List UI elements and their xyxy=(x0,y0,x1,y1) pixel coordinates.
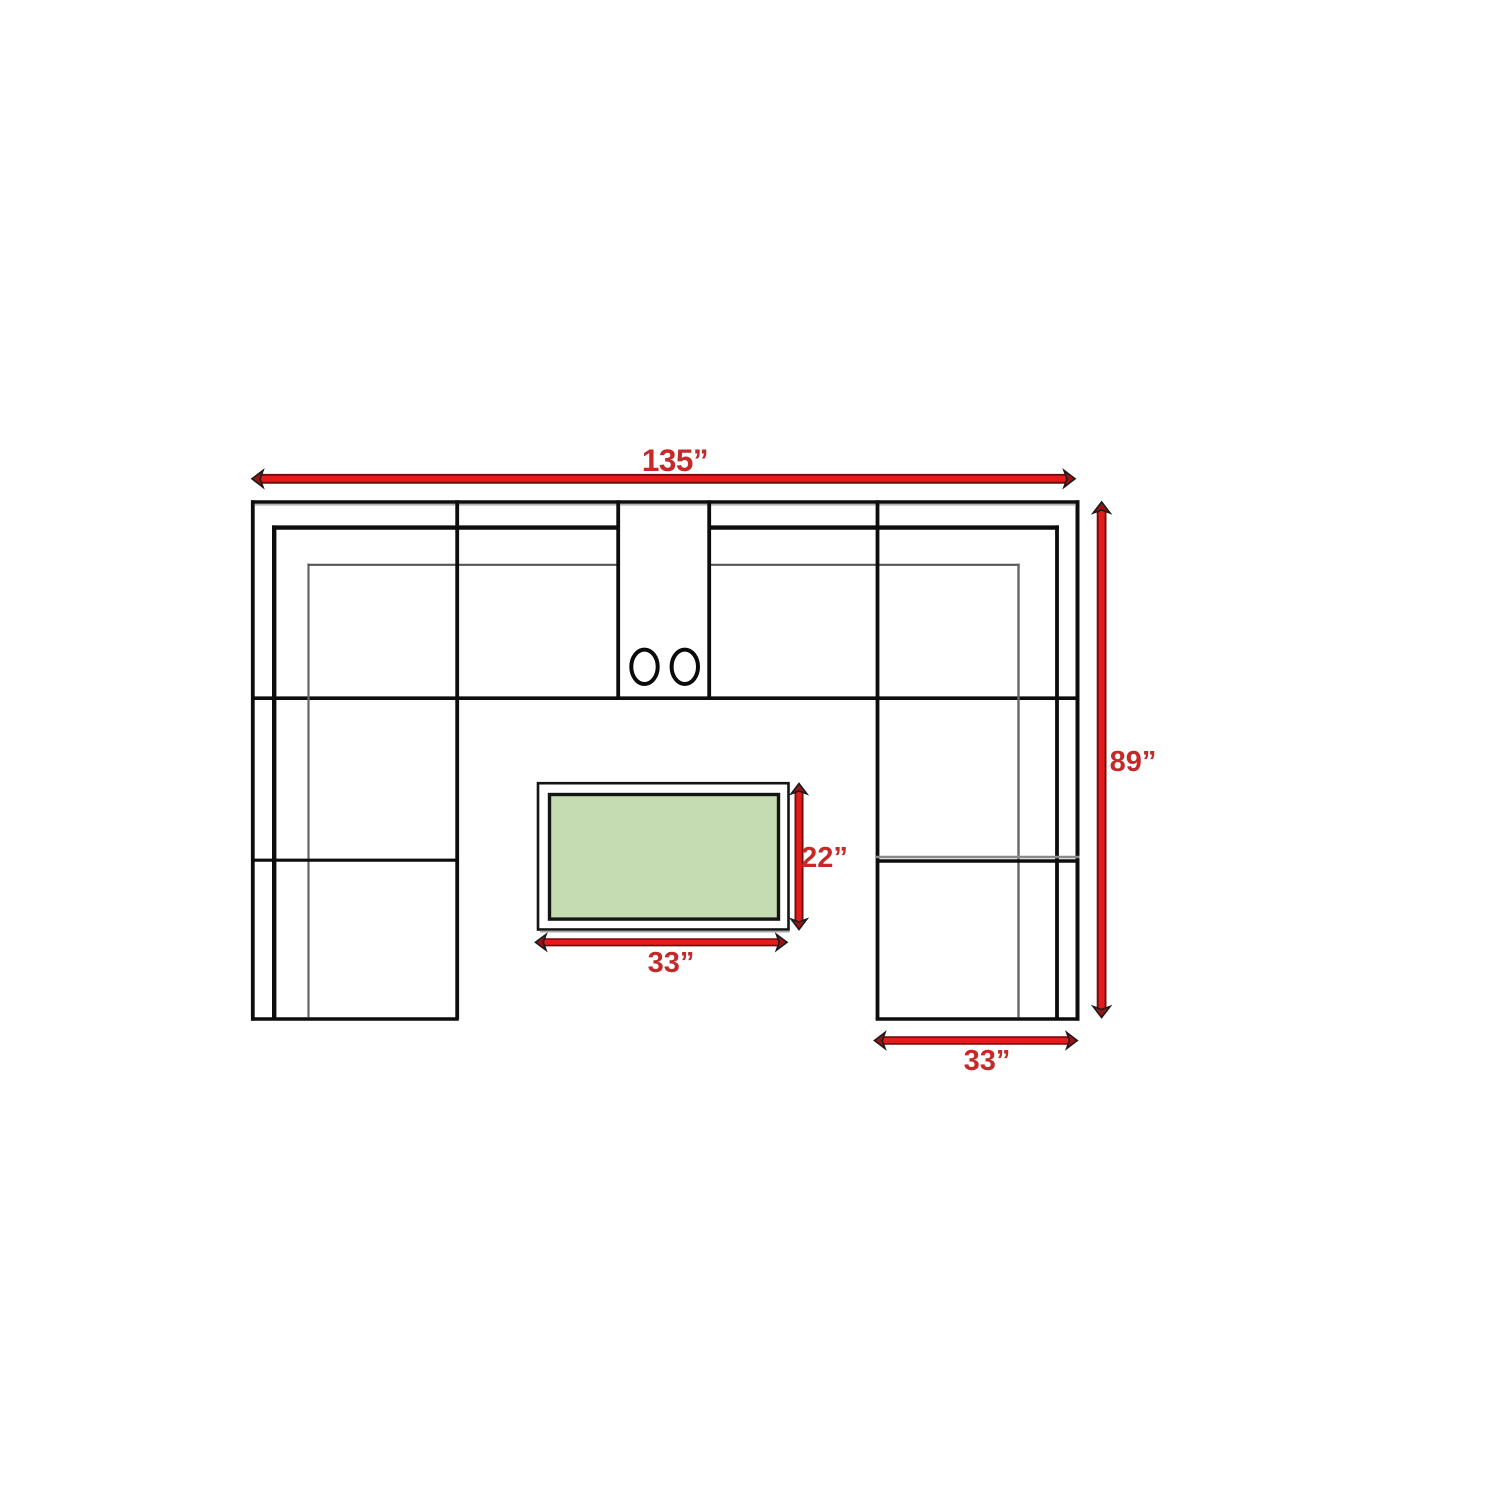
svg-text:22”: 22” xyxy=(801,842,848,874)
svg-text:33”: 33” xyxy=(964,1045,1011,1077)
svg-text:135”: 135” xyxy=(642,442,708,478)
svg-text:33”: 33” xyxy=(648,947,695,979)
svg-text:89”: 89” xyxy=(1110,746,1157,778)
